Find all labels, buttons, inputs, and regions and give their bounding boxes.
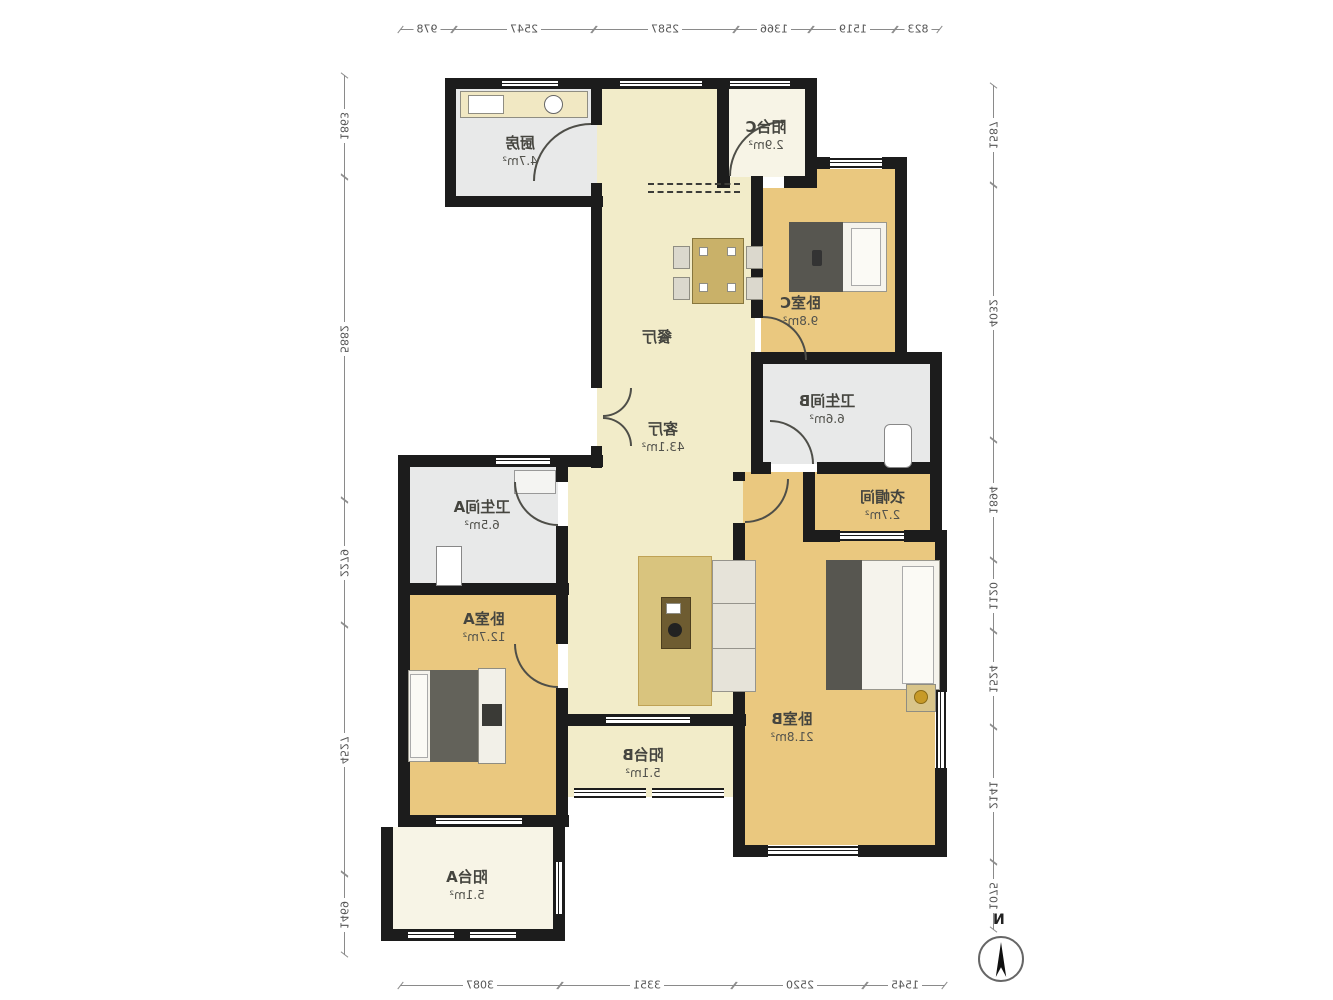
room-area: 5.1m² (598, 766, 688, 780)
dim-segment: 3351 (560, 978, 734, 992)
room-name: 阳台A (422, 866, 512, 887)
dining-chair (746, 246, 763, 269)
window (652, 788, 724, 798)
window (574, 788, 646, 798)
room-name: 阳台B (598, 744, 688, 765)
room-name: 卫生间A (432, 496, 532, 517)
floorplan-page: { "plan": { "compass_label": "N", "rooms… (0, 0, 1333, 1000)
dim-value: 978 (414, 23, 441, 36)
dim-segment: 1469 (337, 874, 351, 955)
dim-segment: 1545 (865, 978, 945, 992)
dim-value: 1366 (757, 23, 791, 36)
bath-fixture (436, 546, 462, 586)
room-area: 6.5m² (432, 518, 532, 532)
room-label-bathroom-b: 卫生间B 6.6m² (777, 390, 877, 426)
dim-value: 1519 (836, 23, 870, 36)
dim-value: 1075 (987, 879, 1000, 913)
wall (858, 845, 947, 857)
window (936, 692, 946, 768)
dim-value: 2141 (987, 778, 1000, 812)
beam-dashed-line (648, 183, 740, 185)
room-label-bedroom-b: 卧室B 21.8m² (742, 708, 842, 744)
dim-segment: 2587 (594, 22, 736, 36)
wall (895, 157, 907, 364)
room-label-balcony-b: 阳台B 5.1m² (598, 744, 688, 780)
room-name: 餐厅 (617, 326, 697, 347)
room-label-kitchen: 厨房 4.7m² (470, 132, 570, 168)
wall (381, 827, 393, 941)
room-area: 5.1m² (422, 888, 512, 902)
dining-plate (699, 247, 708, 256)
bed-pillow (851, 228, 881, 286)
wall (805, 157, 830, 169)
dim-value: 1587 (987, 118, 1000, 152)
living-floor-ext (568, 460, 602, 722)
dim-value: 823 (904, 23, 931, 36)
dim-value: 4032 (987, 296, 1000, 330)
wardrobe-handle (482, 704, 502, 726)
dim-value: 1469 (338, 898, 351, 932)
coffee-table-decor (668, 623, 682, 637)
room-name: 客厅 (613, 418, 713, 439)
dim-value: 1894 (987, 483, 1000, 517)
dim-segment: 5882 (337, 177, 351, 500)
dim-value: 2520 (783, 979, 817, 992)
wall (556, 455, 568, 482)
room-label-cloakroom: 衣帽间 2.7m² (830, 486, 935, 522)
dim-value: 2587 (648, 23, 682, 36)
bed-pillow (902, 566, 934, 684)
dim-segment: 1894 (986, 440, 1000, 560)
dim-segment: 3087 (400, 978, 560, 992)
wall (935, 768, 947, 857)
wall (717, 176, 730, 188)
coffee-table-book (666, 603, 681, 614)
room-label-living: 客厅 43.1m² (613, 418, 713, 454)
dim-value: 1545 (888, 979, 922, 992)
room-area: 12.7m² (434, 630, 534, 644)
wall (398, 455, 410, 827)
dim-segment: 4032 (986, 185, 1000, 440)
wall (733, 845, 768, 857)
window (496, 456, 550, 466)
nightstand-lamp-icon (914, 690, 928, 704)
dim-value: 5882 (338, 322, 351, 356)
bed-duvet (826, 560, 862, 690)
room-area: 2.7m² (830, 508, 935, 522)
room-area: 2.9m² (726, 138, 806, 152)
window (436, 816, 522, 826)
wall (556, 785, 568, 801)
wall (751, 462, 771, 474)
room-name: 衣帽间 (830, 486, 935, 507)
dim-segment: 2547 (454, 22, 594, 36)
room-label-balcony-a: 阳台A 5.1m² (422, 866, 512, 902)
room-label-bedroom-c: 卧室C 9.8m² (753, 292, 848, 328)
wall (556, 688, 568, 827)
beam-dashed-line (648, 191, 740, 193)
window (620, 79, 702, 88)
sofa-cushion-line (712, 648, 756, 649)
room-area: 6.6m² (777, 412, 877, 426)
window (830, 158, 882, 168)
dining-plate (727, 247, 736, 256)
bedroom-c-floor2 (805, 169, 897, 199)
sofa (712, 560, 756, 692)
room-label-bathroom-a: 卫生间A 6.5m² (432, 496, 532, 532)
bed-decor (812, 250, 822, 266)
kitchen-sink (468, 95, 504, 114)
room-name: 卧室C (753, 292, 848, 313)
dim-value: 2547 (507, 23, 541, 36)
dim-segment: 2141 (986, 727, 1000, 862)
wall (803, 530, 840, 542)
dim-value: 2279 (338, 546, 351, 580)
dim-value: 1863 (338, 109, 351, 143)
wall (817, 462, 937, 474)
dim-value: 1524 (987, 662, 1000, 696)
wall (591, 207, 602, 388)
window (606, 715, 690, 725)
dim-value: 1120 (987, 579, 1000, 613)
dim-segment: 4527 (337, 625, 351, 874)
room-label-balcony-c: 阳台C 2.9m² (726, 116, 806, 152)
room-label-bedroom-a: 卧室A 12.7m² (434, 608, 534, 644)
dim-segment: 1587 (986, 85, 1000, 185)
compass-needle-icon (991, 942, 1011, 977)
dining-chair (673, 277, 690, 300)
wall (733, 472, 745, 481)
room-area: 21.8m² (742, 730, 842, 744)
bed-duvet (430, 670, 478, 762)
wall (591, 183, 602, 207)
room-name: 厨房 (470, 132, 570, 153)
room-name: 卧室B (742, 708, 842, 729)
window (840, 531, 904, 541)
room-label-dining: 餐厅 (617, 326, 697, 348)
window (408, 930, 454, 940)
wall (556, 526, 568, 644)
dim-segment: 1519 (811, 22, 895, 36)
wall (751, 358, 763, 464)
toilet (884, 424, 912, 468)
dining-plate (699, 283, 708, 292)
dim-segment: 2520 (734, 978, 865, 992)
window (554, 862, 564, 914)
dim-segment: 1524 (986, 631, 1000, 727)
room-area: 43.1m² (613, 440, 713, 454)
room-name: 卫生间B (777, 390, 877, 411)
dim-value: 4527 (338, 733, 351, 767)
north-label: N (993, 912, 1005, 928)
dim-segment: 2279 (337, 500, 351, 625)
window (502, 79, 558, 88)
dining-plate (727, 283, 736, 292)
dim-value: 3087 (463, 979, 497, 992)
dim-value: 3351 (630, 979, 664, 992)
sofa-cushion-line (712, 603, 756, 604)
room-area: 4.7m² (470, 154, 570, 168)
dim-segment: 978 (400, 22, 454, 36)
kitchen-stove-icon (544, 95, 563, 114)
window (730, 79, 790, 88)
room-area: 9.8m² (753, 314, 848, 328)
window (768, 846, 858, 856)
dining-chair (673, 246, 690, 269)
wall (591, 89, 602, 125)
wall (445, 78, 456, 207)
dim-segment: 1863 (337, 75, 351, 177)
window (470, 930, 516, 940)
bed-pillow (410, 674, 428, 758)
dim-segment: 1120 (986, 560, 1000, 631)
room-name: 卧室A (434, 608, 534, 629)
dim-segment: 823 (895, 22, 940, 36)
dim-segment: 1366 (736, 22, 811, 36)
compass (978, 936, 1024, 982)
wall (445, 196, 603, 207)
wall (398, 583, 569, 595)
room-name: 阳台C (726, 116, 806, 137)
